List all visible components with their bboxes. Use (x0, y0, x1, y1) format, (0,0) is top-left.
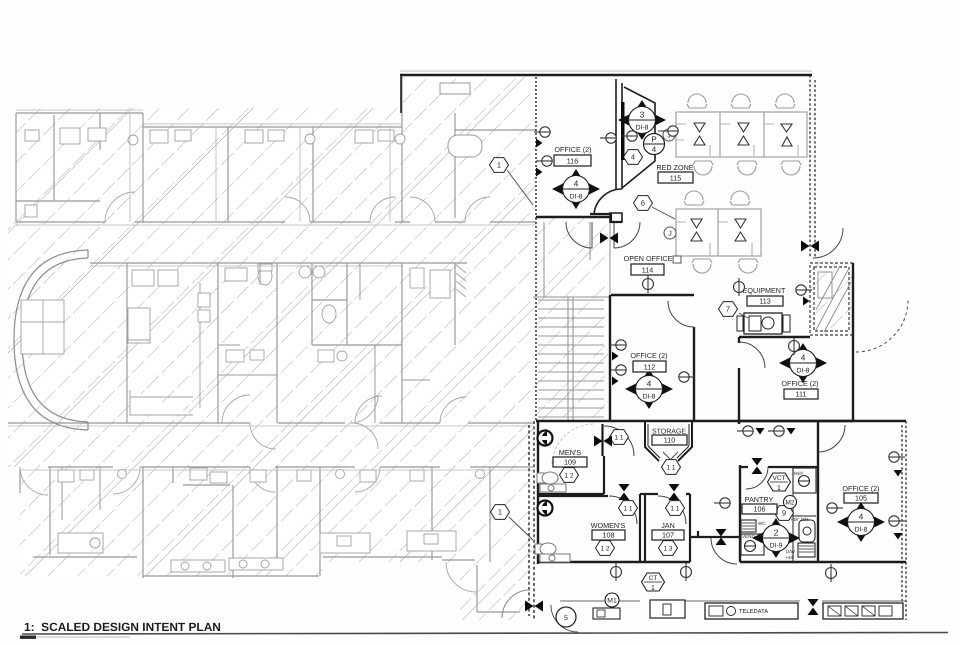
svg-text:DI-8: DI-8 (797, 368, 810, 375)
svg-text:106: 106 (754, 505, 766, 514)
svg-text:5: 5 (564, 615, 568, 622)
svg-text:4: 4 (631, 153, 635, 162)
svg-text:DI-8: DI-8 (570, 194, 583, 201)
svg-text:2: 2 (774, 528, 779, 538)
svg-text:6: 6 (641, 199, 645, 208)
svg-text:1 1: 1 1 (623, 506, 632, 513)
svg-text:OFFICE (2): OFFICE (2) (842, 484, 879, 493)
svg-text:1 2: 1 2 (564, 473, 573, 480)
svg-text:9: 9 (782, 509, 786, 518)
svg-text:DI-8: DI-8 (855, 527, 868, 534)
svg-text:TELEDATA: TELEDATA (739, 609, 768, 615)
svg-text:1 1: 1 1 (670, 506, 679, 513)
svg-text:WOMEN'S: WOMEN'S (591, 521, 626, 530)
svg-text:1: 1 (498, 508, 502, 517)
svg-text:7: 7 (726, 305, 730, 314)
svg-text:OFFICE (2): OFFICE (2) (554, 145, 591, 154)
svg-text:MEN'S: MEN'S (559, 448, 581, 457)
svg-text:1 1: 1 1 (666, 465, 675, 472)
svg-text:PANTRY: PANTRY (745, 495, 774, 504)
svg-text:108: 108 (603, 531, 615, 540)
svg-text:REF.: REF. (794, 471, 804, 476)
svg-text:DI-8: DI-8 (636, 125, 649, 132)
svg-text:105: 105 (855, 494, 867, 503)
svg-text:1: 1 (651, 585, 655, 592)
svg-text:1 3: 1 3 (663, 546, 672, 553)
svg-text:M1: M1 (607, 598, 617, 605)
svg-text:4: 4 (801, 353, 806, 363)
svg-text:RED ZONE: RED ZONE (656, 163, 693, 172)
svg-text:JAN: JAN (661, 521, 675, 530)
svg-text:4: 4 (652, 145, 657, 154)
svg-text:107: 107 (662, 531, 674, 540)
svg-text:VEND: VEND (742, 534, 755, 539)
svg-text:VCT: VCT (773, 475, 786, 482)
svg-text:114: 114 (642, 266, 653, 275)
svg-text:1: SCALED DESIGN INTENT PLAN: 1: SCALED DESIGN INTENT PLAN (24, 620, 221, 634)
svg-text:CT: CT (649, 575, 658, 582)
svg-text:1: 1 (497, 161, 501, 170)
svg-text:M2: M2 (785, 500, 794, 507)
svg-text:1 1: 1 1 (614, 435, 623, 442)
svg-text:1: 1 (777, 485, 781, 492)
svg-text:EQUIPMENT: EQUIPMENT (743, 286, 786, 295)
svg-text:DI-9: DI-9 (770, 543, 783, 550)
svg-text:P: P (651, 135, 656, 144)
svg-text:+48" D/R: +48" D/R (790, 517, 809, 522)
svg-text:112: 112 (644, 363, 655, 372)
svg-text:+44": +44" (785, 555, 795, 560)
svg-text:WC: WC (758, 521, 766, 526)
svg-text:J: J (668, 231, 672, 238)
svg-text:116: 116 (567, 157, 578, 166)
svg-text:OFFICE (2): OFFICE (2) (781, 379, 818, 388)
svg-text:115: 115 (670, 174, 681, 183)
svg-text:3: 3 (640, 110, 645, 120)
svg-text:1 2: 1 2 (600, 546, 609, 553)
svg-text:4: 4 (574, 179, 579, 189)
svg-text:110: 110 (664, 436, 675, 445)
svg-text:OFFICE (2): OFFICE (2) (630, 351, 667, 360)
svg-text:OPEN OFFICE: OPEN OFFICE (624, 254, 673, 263)
svg-text:4: 4 (859, 512, 864, 522)
svg-text:4: 4 (647, 379, 652, 389)
svg-text:109: 109 (564, 458, 576, 467)
svg-text:111: 111 (796, 390, 807, 399)
svg-text:113: 113 (759, 297, 770, 306)
svg-text:D/W: D/W (786, 549, 796, 554)
svg-text:DI-8: DI-8 (643, 394, 656, 401)
